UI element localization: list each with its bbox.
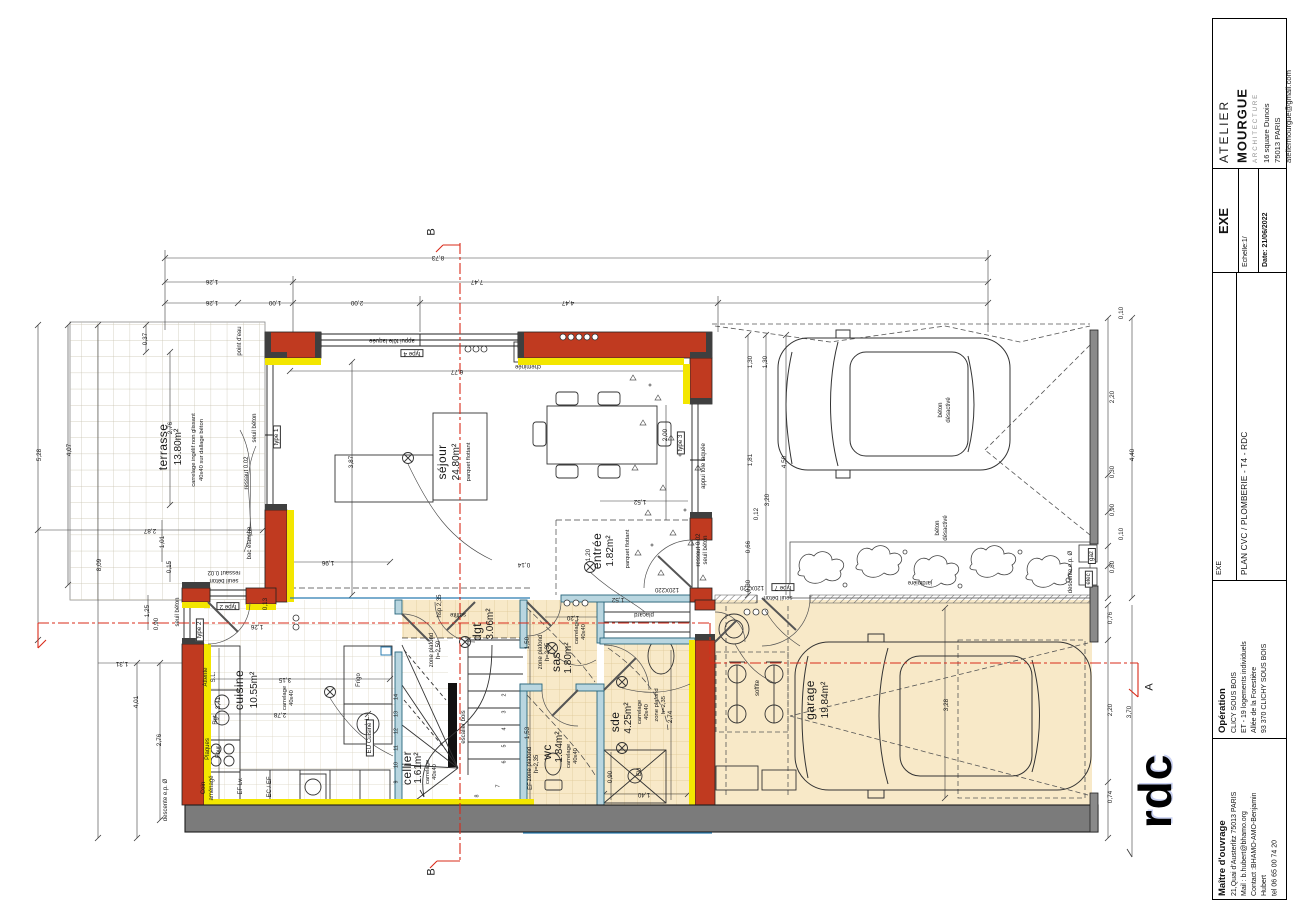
plan-label: 2,20 <box>1108 704 1114 716</box>
plan-label: carrelage <box>567 744 573 768</box>
plan-label: placard <box>634 611 654 617</box>
plan-label: 1,26 <box>251 623 263 629</box>
plan-label: zone plafond <box>655 688 661 721</box>
plan-label: Frigo <box>356 673 362 687</box>
plan-label: 40x40 <box>574 748 580 764</box>
plan-label: 1,26 <box>206 299 218 305</box>
plan-label: 8,73 <box>432 254 444 260</box>
plan-label: 0,10 <box>1119 528 1125 540</box>
plan-label: type 1 <box>273 426 281 449</box>
plan-label: 0,74 <box>1108 791 1114 803</box>
plan-label: séjour <box>436 444 448 479</box>
plan-label: 0,90 <box>1110 504 1116 516</box>
plan-label: dgt <box>471 623 483 641</box>
floor-label: rdc <box>1128 754 1182 829</box>
plan-label: soffite <box>450 611 466 617</box>
plan-label: 6 <box>502 761 507 764</box>
plan-label: cheminée <box>515 363 541 369</box>
plan-label: 2,76 <box>157 734 163 746</box>
plan-label: 0,10 <box>1119 307 1125 319</box>
plan-label: gaz <box>1088 548 1096 564</box>
plan-label: 1,96 <box>322 559 334 565</box>
date-label: Date: 21/06/2022 <box>1259 169 1288 272</box>
owner-line: tel 06 65 00 74 20 <box>1270 744 1280 896</box>
plan-label: EC / EF <box>267 776 273 797</box>
plan-label: 2,00 <box>351 299 363 305</box>
plan-label: 8 <box>475 795 480 798</box>
plan-label: zone plafond <box>527 747 533 781</box>
plan-label: h=2,35 <box>534 755 540 774</box>
plan-label: aménagé <box>209 775 215 800</box>
plan-label: 0,80 <box>1110 561 1116 573</box>
plan-label: EU <box>637 768 643 776</box>
plan-label: EF Lv. <box>238 778 244 795</box>
plan-label: appui tôle laquée <box>701 443 707 489</box>
operation-line: 93 370 CLICHY SOUS BOIS <box>1260 586 1270 733</box>
plan-label: 19.84m² <box>821 682 831 719</box>
operation-line: CLICY SOUS BOIS <box>1230 586 1240 733</box>
plan-label: parquet flottant <box>467 443 473 482</box>
plan-label: EF <box>528 782 534 790</box>
plan-label: ressaut 0.02 <box>696 533 702 566</box>
plan-label: h=2,50 <box>436 641 442 660</box>
plan-label: 0,12 <box>754 508 760 520</box>
plan-label: désactivé <box>946 397 952 422</box>
plan-label: 10 <box>394 762 399 768</box>
plan-label: 3 <box>502 711 507 714</box>
plan-label: 1,26 <box>206 278 218 284</box>
plan-label: 1.84m² <box>555 731 565 762</box>
plan-label: 8,09 <box>97 559 103 571</box>
plan-label: 1.61m² <box>414 752 424 783</box>
plan-label: zone plafond <box>538 635 544 669</box>
plan-label: carrelage ingélif non glissant <box>192 413 198 486</box>
owner-heading: Maître d'ouvrage <box>1216 744 1230 896</box>
plan-label: Plaques <box>205 738 211 760</box>
doc-phase: EXE <box>1213 273 1236 580</box>
plan-label: 0,14 <box>518 561 530 567</box>
owner-line: 21,Quai d'Austerlitz 75013 PARIS <box>1230 744 1240 896</box>
plan-label: type 2 <box>217 602 240 610</box>
plan-label: cuisine <box>233 670 245 710</box>
phase-label: EXE <box>1213 169 1238 272</box>
plan-label: 1,50 <box>525 637 531 649</box>
plan-label: cellier <box>401 751 413 785</box>
plan-label: carrelage <box>283 686 289 710</box>
plan-label: seuil béton <box>175 597 181 626</box>
plan-label: type 4 <box>401 349 424 357</box>
plan-label: hsp 2,35 <box>437 594 443 617</box>
plan-label: 12 <box>394 728 399 734</box>
plan-label: 1.80m² <box>564 642 574 673</box>
plan-label: 1,52 <box>634 498 646 504</box>
car-driveway <box>778 330 1010 478</box>
plan-label: 1,53 <box>525 727 531 739</box>
plan-label: sde <box>609 712 621 733</box>
plan-label: 2,74 <box>668 711 674 723</box>
plan-label: 4,50 <box>782 456 788 468</box>
plan-label: 0,13 <box>263 598 269 610</box>
title-block-owner: Maître d'ouvrage 21,Quai d'Austerlitz 75… <box>1213 739 1286 901</box>
plan-label: seuil béton <box>252 413 258 442</box>
plan-label: 3,87 <box>349 456 355 468</box>
plan-label: wc <box>541 744 553 759</box>
plan-label: 4,07 <box>67 444 73 456</box>
plan-label: Attente <box>203 667 209 686</box>
plan-label: 3,20 <box>765 494 771 506</box>
plan-label: 11 <box>394 745 399 751</box>
plan-label: type 2 <box>196 619 204 642</box>
plan-label: 3,28 <box>944 699 950 711</box>
plan-label: terrasse <box>157 424 169 471</box>
plan-label: 120X220 <box>655 586 679 592</box>
agency-name-line2: MOURGUE <box>1233 24 1252 163</box>
title-block-operation: Opération CLICY SOUS BOIS ET - 19 logeme… <box>1213 581 1286 739</box>
agency-email: ateliermourgue@gmail.com <box>1283 24 1294 163</box>
plan-label: appui tôle laquée <box>369 337 415 343</box>
plan-label: 1,30 <box>763 356 769 368</box>
plan-label: S.L. <box>211 672 217 683</box>
plan-label: escalier bois <box>461 710 467 743</box>
plan-label: A <box>1145 683 1156 690</box>
plan-label: 3.06m² <box>486 608 496 639</box>
plan-label: type 7 <box>772 583 795 591</box>
plan-label: 2 <box>502 694 507 697</box>
plan-label: garage <box>804 680 816 720</box>
operation-heading: Opération <box>1216 586 1230 733</box>
plan-label: 0,76 <box>1108 612 1114 624</box>
plan-label: 5,28 <box>37 449 43 461</box>
plan-label: 3,70 <box>1127 706 1133 718</box>
plan-label: 0,66 <box>746 541 752 553</box>
plan-label: 2,87 <box>144 527 156 533</box>
plan-label: bac étanche <box>247 527 253 560</box>
plan-label: carrelage <box>638 700 644 724</box>
plan-label: 4,47 <box>562 299 574 305</box>
plan-label: parquet flottant <box>626 530 632 569</box>
owner-line: Mail : b.hubert@bhamo.org <box>1240 744 1250 896</box>
title-block-phase-row: EXE Echelle:1/ Date: 21/06/2022 <box>1213 169 1286 273</box>
plan-label: type 3 <box>677 432 685 455</box>
plan-label: 3,41 <box>216 697 222 709</box>
plan-label: soffite <box>755 680 761 696</box>
plan-label: seuil béton <box>703 535 709 564</box>
plan-label: B <box>427 868 438 875</box>
plan-label: h=2,35 <box>545 643 551 662</box>
plan-label: carrelage <box>575 620 581 644</box>
plan-label: 6,77 <box>451 368 463 374</box>
plan-label: ressaut 0.02 <box>207 569 240 575</box>
plan-label: 7 <box>496 785 501 788</box>
plan-label: 2,78 <box>274 711 286 717</box>
plan-label: 40x40 <box>582 624 588 640</box>
plan-label: zone plafond <box>429 633 435 667</box>
plan-label: 40x40 <box>290 690 296 706</box>
operation-line: Allée de la Forestière <box>1250 586 1260 733</box>
scale-label: Echelle:1/ <box>1239 169 1258 272</box>
agency-address2: 75013 PARIS <box>1272 24 1283 163</box>
plan-label: 10.55m² <box>250 672 260 709</box>
planter-jardiniere <box>790 542 1090 598</box>
plan-label: elec <box>1085 570 1093 587</box>
owner-line: Hubert <box>1260 744 1270 896</box>
plan-label: 0,90 <box>608 771 614 783</box>
plan-label: Rgt <box>213 715 219 724</box>
plan-label: 13 <box>394 711 399 717</box>
plan-label: 1,40 <box>638 791 650 797</box>
plan-label: EU Cuisine <box>366 720 374 757</box>
plan-label: seuil béton <box>763 594 792 600</box>
operation-line: ET - 19 logements individuels <box>1240 586 1250 733</box>
agency-name-line1: ATELIER <box>1216 24 1233 163</box>
plan-label: 9 <box>394 781 399 784</box>
plan-label: 40x40 sur dallage béton <box>200 419 206 481</box>
doc-title: PLAN CVC / PLOMBERIE - T4 - RDC <box>1237 273 1288 580</box>
plan-label: 40x40 <box>433 764 439 780</box>
plan-label: Four <box>216 746 222 758</box>
plan-label: 0,15 <box>167 561 173 573</box>
plan-label: descente e.p. Ø <box>163 779 169 821</box>
plan-label: 13.80m² <box>174 429 184 466</box>
plan-label: 5 <box>502 745 507 748</box>
plan-label: 1,25 <box>145 605 151 617</box>
title-block: ATELIER MOURGUE ARCHITECTURE 16 square D… <box>1212 18 1287 900</box>
plan-label: carrelage <box>426 760 432 784</box>
plan-label: descente e.p. Ø <box>1068 551 1074 593</box>
plan-label: 2,00 <box>663 429 669 441</box>
plan-label: 7,47 <box>471 278 483 284</box>
plan-label: 1,81 <box>748 454 754 466</box>
plan-label: désactivé <box>943 515 949 540</box>
plan-label: ressaut 0.02 <box>244 456 250 489</box>
plan-label: sas <box>550 652 562 672</box>
plan-label: 4,40 <box>1130 449 1136 461</box>
plan-label: h=2,35 <box>662 696 668 714</box>
drawing-sheet: BBA8,731,267,471,261,002,004,475,284,078… <box>0 0 1297 916</box>
plan-label: 4,01 <box>134 696 140 708</box>
title-block-doc: EXE PLAN CVC / PLOMBERIE - T4 - RDC <box>1213 273 1286 581</box>
plan-label: 1,01 <box>160 536 166 548</box>
plan-label: Coin <box>201 782 207 794</box>
plan-label: 1,00 <box>269 299 281 305</box>
plan-label: jardinière <box>908 579 933 585</box>
plan-label: 24.80m² <box>452 444 462 481</box>
agency-name-line3: ARCHITECTURE <box>1252 30 1261 163</box>
plan-label: 4.25m² <box>624 702 634 733</box>
title-block-agency: ATELIER MOURGUE ARCHITECTURE 16 square D… <box>1213 19 1286 169</box>
agency-address1: 16 square Dunois <box>1261 24 1272 163</box>
plan-label: 4 <box>502 728 507 731</box>
plan-label: béton <box>938 402 944 417</box>
owner-line: Contact :BHAMO-AMO-Benjamin <box>1250 744 1260 896</box>
plan-label: 2,20 <box>1110 391 1116 403</box>
plan-label: 1.82m² <box>606 535 616 566</box>
plan-label: 1,52 <box>612 596 624 602</box>
plan-label: 1,31 <box>116 660 128 666</box>
plan-label: point d'eau <box>237 326 243 355</box>
plan-label: B <box>427 228 438 235</box>
plan-label: 0,90 <box>154 618 160 630</box>
plan-label: béton <box>935 520 941 535</box>
plan-label: entrée <box>591 533 603 569</box>
plan-label: 120X220 <box>740 584 764 590</box>
plan-label: seuil béton <box>209 577 238 583</box>
plan-label: 3,15 <box>279 676 291 682</box>
plan-label: 40x40 <box>645 704 651 720</box>
plan-label: 1,30 <box>748 356 754 368</box>
plan-label: 14 <box>394 694 399 700</box>
plan-label: 0,30 <box>1110 466 1116 478</box>
plan-label: 0,37 <box>143 333 149 345</box>
